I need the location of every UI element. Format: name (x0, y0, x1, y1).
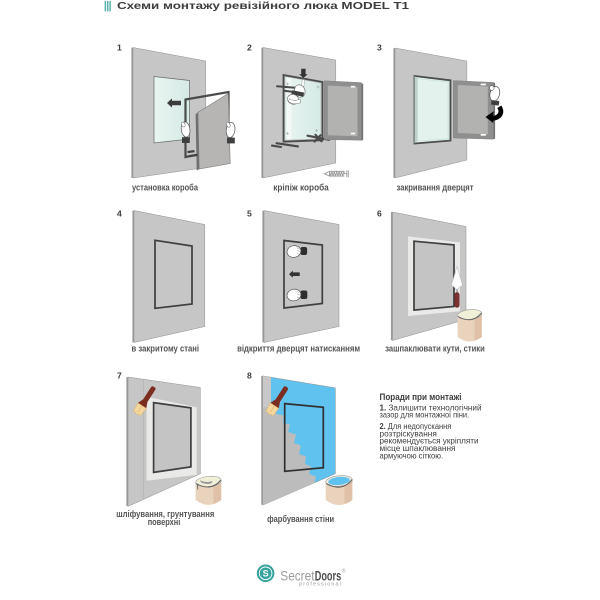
svg-text:1: 1 (117, 43, 122, 53)
svg-text:закривання дверцят: закривання дверцят (397, 183, 475, 193)
svg-text:3: 3 (377, 43, 382, 53)
svg-text:поверхні: поверхні (148, 517, 181, 527)
svg-text:6: 6 (377, 208, 382, 218)
svg-text:установка короба: установка короба (132, 183, 198, 193)
svg-text:®: ® (342, 568, 346, 575)
svg-text:армуючою сіткою.: армуючою сіткою. (380, 451, 444, 461)
svg-text:8: 8 (247, 371, 252, 381)
svg-text:фарбування стіни: фарбування стіни (267, 514, 334, 524)
svg-text:в закритому стані: в закритому стані (132, 344, 200, 354)
svg-text:зазор для монтажної піни.: зазор для монтажної піни. (380, 410, 470, 420)
svg-text:S: S (263, 569, 269, 579)
svg-text:Схеми монтажу ревізійного люка: Схеми монтажу ревізійного люка MODEL T1 (117, 1, 409, 12)
svg-text:зашпаклювати кути, стики: зашпаклювати кути, стики (385, 344, 485, 354)
svg-text:2: 2 (247, 43, 252, 53)
svg-text:5: 5 (247, 208, 252, 218)
svg-text:відкриття дверцят натисканням: відкриття дверцят натисканням (237, 344, 360, 354)
svg-text:кріпіж короба: кріпіж короба (273, 183, 329, 193)
svg-text:4: 4 (117, 208, 122, 218)
svg-text:Поради при монтажі: Поради при монтажі (380, 392, 462, 402)
svg-text:professional: professional (299, 582, 342, 588)
svg-text:7: 7 (117, 371, 122, 381)
